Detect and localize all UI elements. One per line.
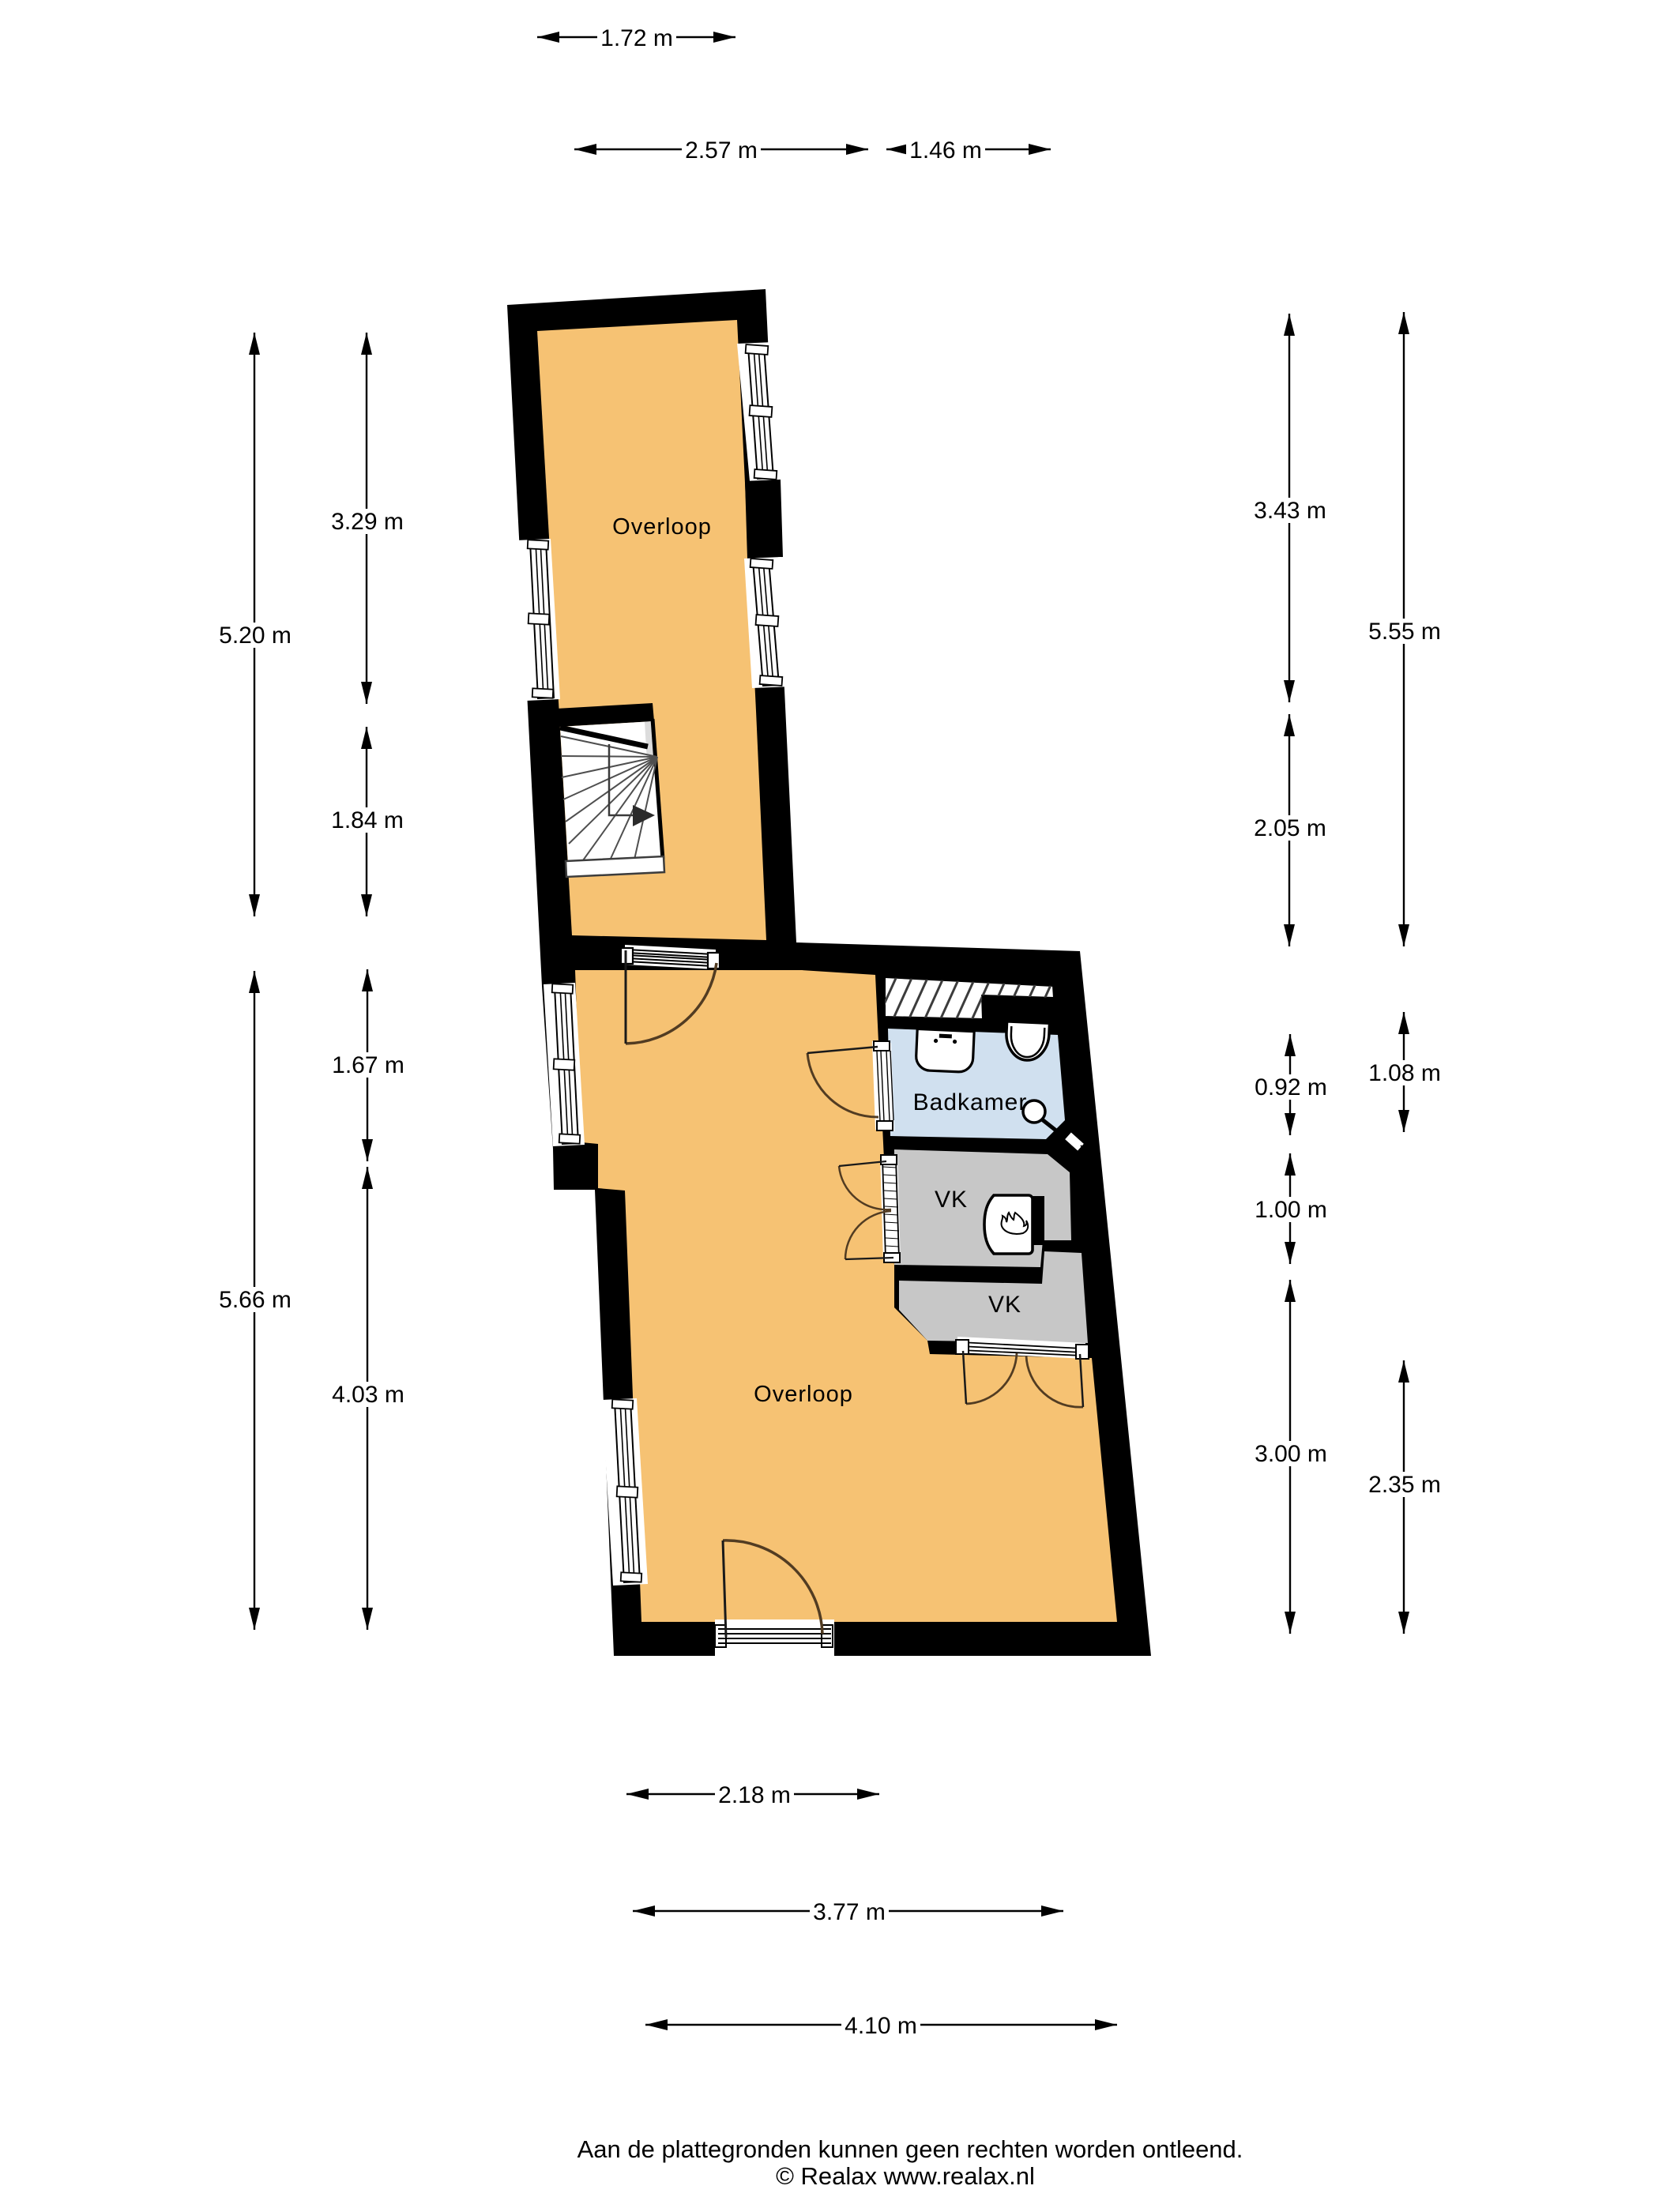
svg-text:5.55 m: 5.55 m [1368,619,1441,645]
svg-text:Badkamer: Badkamer [913,1089,1028,1115]
svg-text:0.92 m: 0.92 m [1255,1074,1327,1100]
svg-text:3.77 m: 3.77 m [813,1899,886,1925]
svg-text:3.00 m: 3.00 m [1255,1441,1327,1467]
svg-text:4.10 m: 4.10 m [845,2013,917,2039]
svg-text:VK: VK [988,1292,1021,1318]
svg-text:© Realax www.realax.nl: © Realax www.realax.nl [776,2162,1035,2190]
svg-text:Overloop: Overloop [612,514,712,540]
svg-text:5.20 m: 5.20 m [219,623,292,649]
svg-text:2.18 m: 2.18 m [718,1782,791,1808]
svg-text:Aan de plattegronden kunnen ge: Aan de plattegronden kunnen geen rechten… [577,2135,1243,2163]
svg-text:1.84 m: 1.84 m [331,807,404,833]
svg-text:3.43 m: 3.43 m [1254,498,1326,524]
svg-text:4.03 m: 4.03 m [332,1382,404,1408]
svg-text:1.72 m: 1.72 m [600,25,673,51]
svg-text:Overloop: Overloop [754,1382,853,1407]
svg-text:1.67 m: 1.67 m [332,1052,404,1078]
svg-text:2.35 m: 2.35 m [1368,1472,1441,1498]
svg-text:5.66 m: 5.66 m [219,1287,292,1313]
svg-text:1.08 m: 1.08 m [1368,1060,1441,1086]
svg-text:VK: VK [935,1187,968,1213]
svg-text:2.57 m: 2.57 m [685,137,758,164]
svg-text:2.05 m: 2.05 m [1254,815,1326,841]
svg-text:3.29 m: 3.29 m [331,509,404,535]
svg-text:1.00 m: 1.00 m [1255,1197,1327,1223]
svg-text:1.46 m: 1.46 m [909,137,982,164]
